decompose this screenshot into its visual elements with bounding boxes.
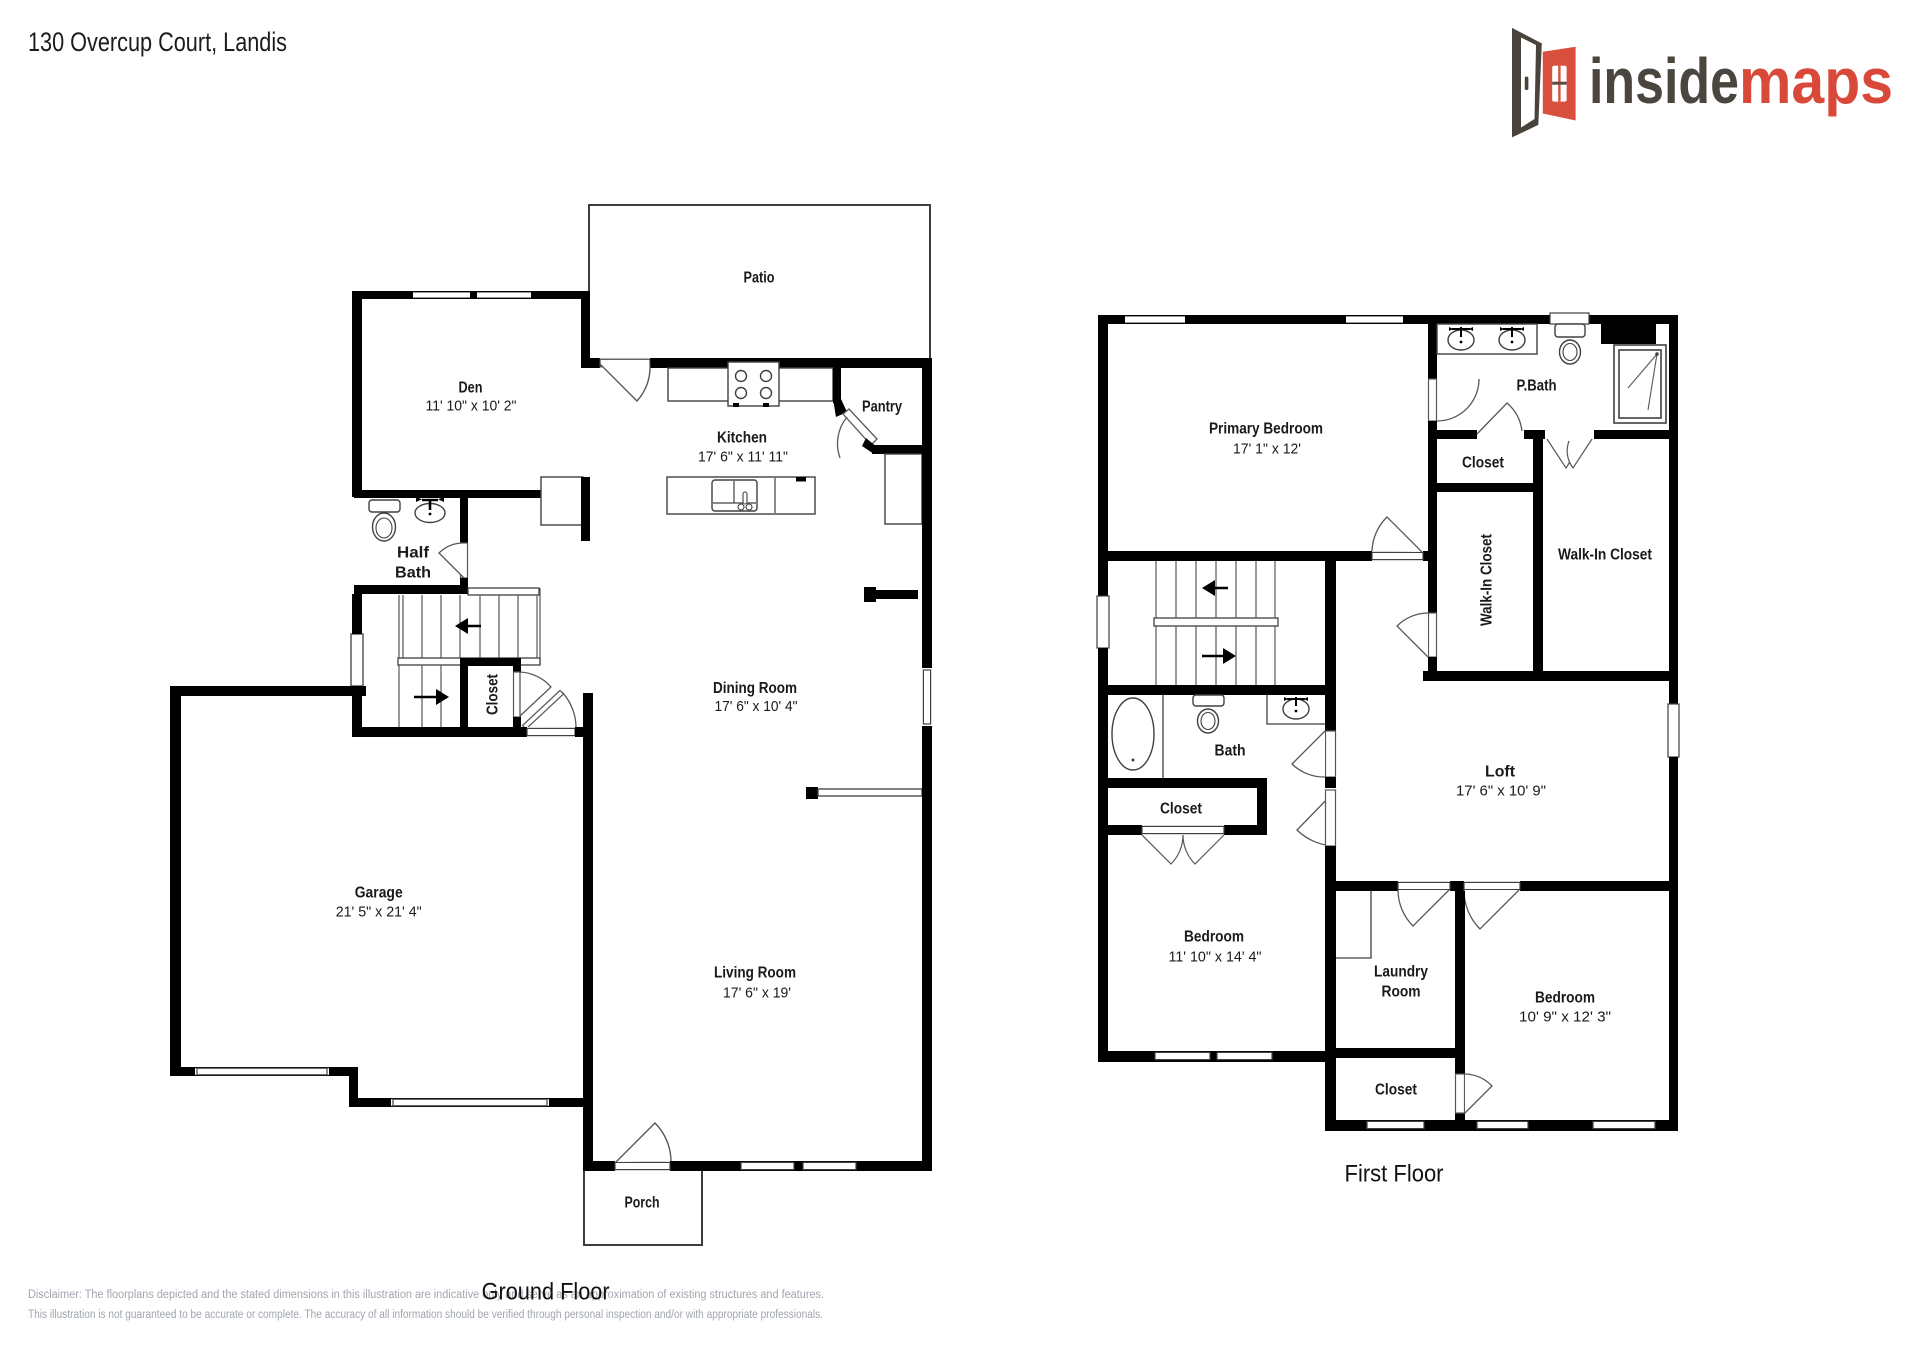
svg-text:17' 1" x 12': 17' 1" x 12' bbox=[1233, 441, 1301, 458]
svg-text:Walk-In Closet: Walk-In Closet bbox=[1479, 533, 1496, 626]
svg-text:inside: inside bbox=[1589, 45, 1739, 117]
svg-text:Walk-In Closet: Walk-In Closet bbox=[1558, 547, 1653, 564]
svg-text:17' 6" x 19': 17' 6" x 19' bbox=[723, 985, 791, 1002]
svg-text:Closet: Closet bbox=[1160, 801, 1203, 818]
svg-text:17' 6" x 10' 4": 17' 6" x 10' 4" bbox=[715, 698, 798, 715]
svg-text:Pantry: Pantry bbox=[862, 399, 902, 416]
svg-text:Closet: Closet bbox=[485, 673, 502, 715]
svg-text:P.Bath: P.Bath bbox=[1517, 378, 1557, 395]
svg-text:17' 6" x 11' 11": 17' 6" x 11' 11" bbox=[698, 449, 788, 466]
svg-text:Den: Den bbox=[459, 380, 483, 397]
svg-text:Room: Room bbox=[1382, 984, 1421, 1001]
svg-text:Closet: Closet bbox=[1462, 455, 1505, 472]
svg-text:130 Overcup Court, Landis: 130 Overcup Court, Landis bbox=[28, 27, 287, 57]
svg-text:Garage: Garage bbox=[355, 885, 403, 902]
svg-text:11' 10" x 10' 2": 11' 10" x 10' 2" bbox=[426, 398, 517, 415]
svg-text:Patio: Patio bbox=[744, 270, 775, 287]
svg-text:Bath: Bath bbox=[395, 565, 431, 582]
svg-text:10' 9" x 12' 3": 10' 9" x 12' 3" bbox=[1519, 1009, 1611, 1026]
svg-text:Bath: Bath bbox=[1215, 743, 1246, 760]
svg-text:Half: Half bbox=[397, 545, 430, 562]
svg-text:21' 5" x 21' 4": 21' 5" x 21' 4" bbox=[336, 904, 422, 921]
svg-text:Ground Floor: Ground Floor bbox=[482, 1279, 610, 1306]
svg-text:Bedroom: Bedroom bbox=[1184, 929, 1244, 946]
svg-text:Disclaimer: The floorplans dep: Disclaimer: The floorplans depicted and … bbox=[28, 1289, 824, 1301]
svg-text:Kitchen: Kitchen bbox=[717, 430, 767, 447]
svg-text:This illustration is not guara: This illustration is not guaranteed to b… bbox=[28, 1309, 823, 1321]
svg-text:First Floor: First Floor bbox=[1345, 1161, 1444, 1188]
svg-text:Living Room: Living Room bbox=[714, 965, 796, 982]
svg-text:17' 6" x 10' 9": 17' 6" x 10' 9" bbox=[1456, 783, 1546, 800]
svg-text:Dining Room: Dining Room bbox=[713, 680, 797, 697]
svg-text:Porch: Porch bbox=[625, 1195, 660, 1212]
svg-text:Loft: Loft bbox=[1485, 764, 1516, 781]
svg-text:Primary Bedroom: Primary Bedroom bbox=[1209, 421, 1323, 438]
svg-text:Bedroom: Bedroom bbox=[1535, 990, 1595, 1007]
svg-text:Closet: Closet bbox=[1375, 1082, 1418, 1099]
svg-text:Laundry: Laundry bbox=[1374, 964, 1428, 981]
svg-text:11' 10" x 14' 4": 11' 10" x 14' 4" bbox=[1169, 949, 1262, 966]
svg-text:maps: maps bbox=[1739, 45, 1893, 117]
